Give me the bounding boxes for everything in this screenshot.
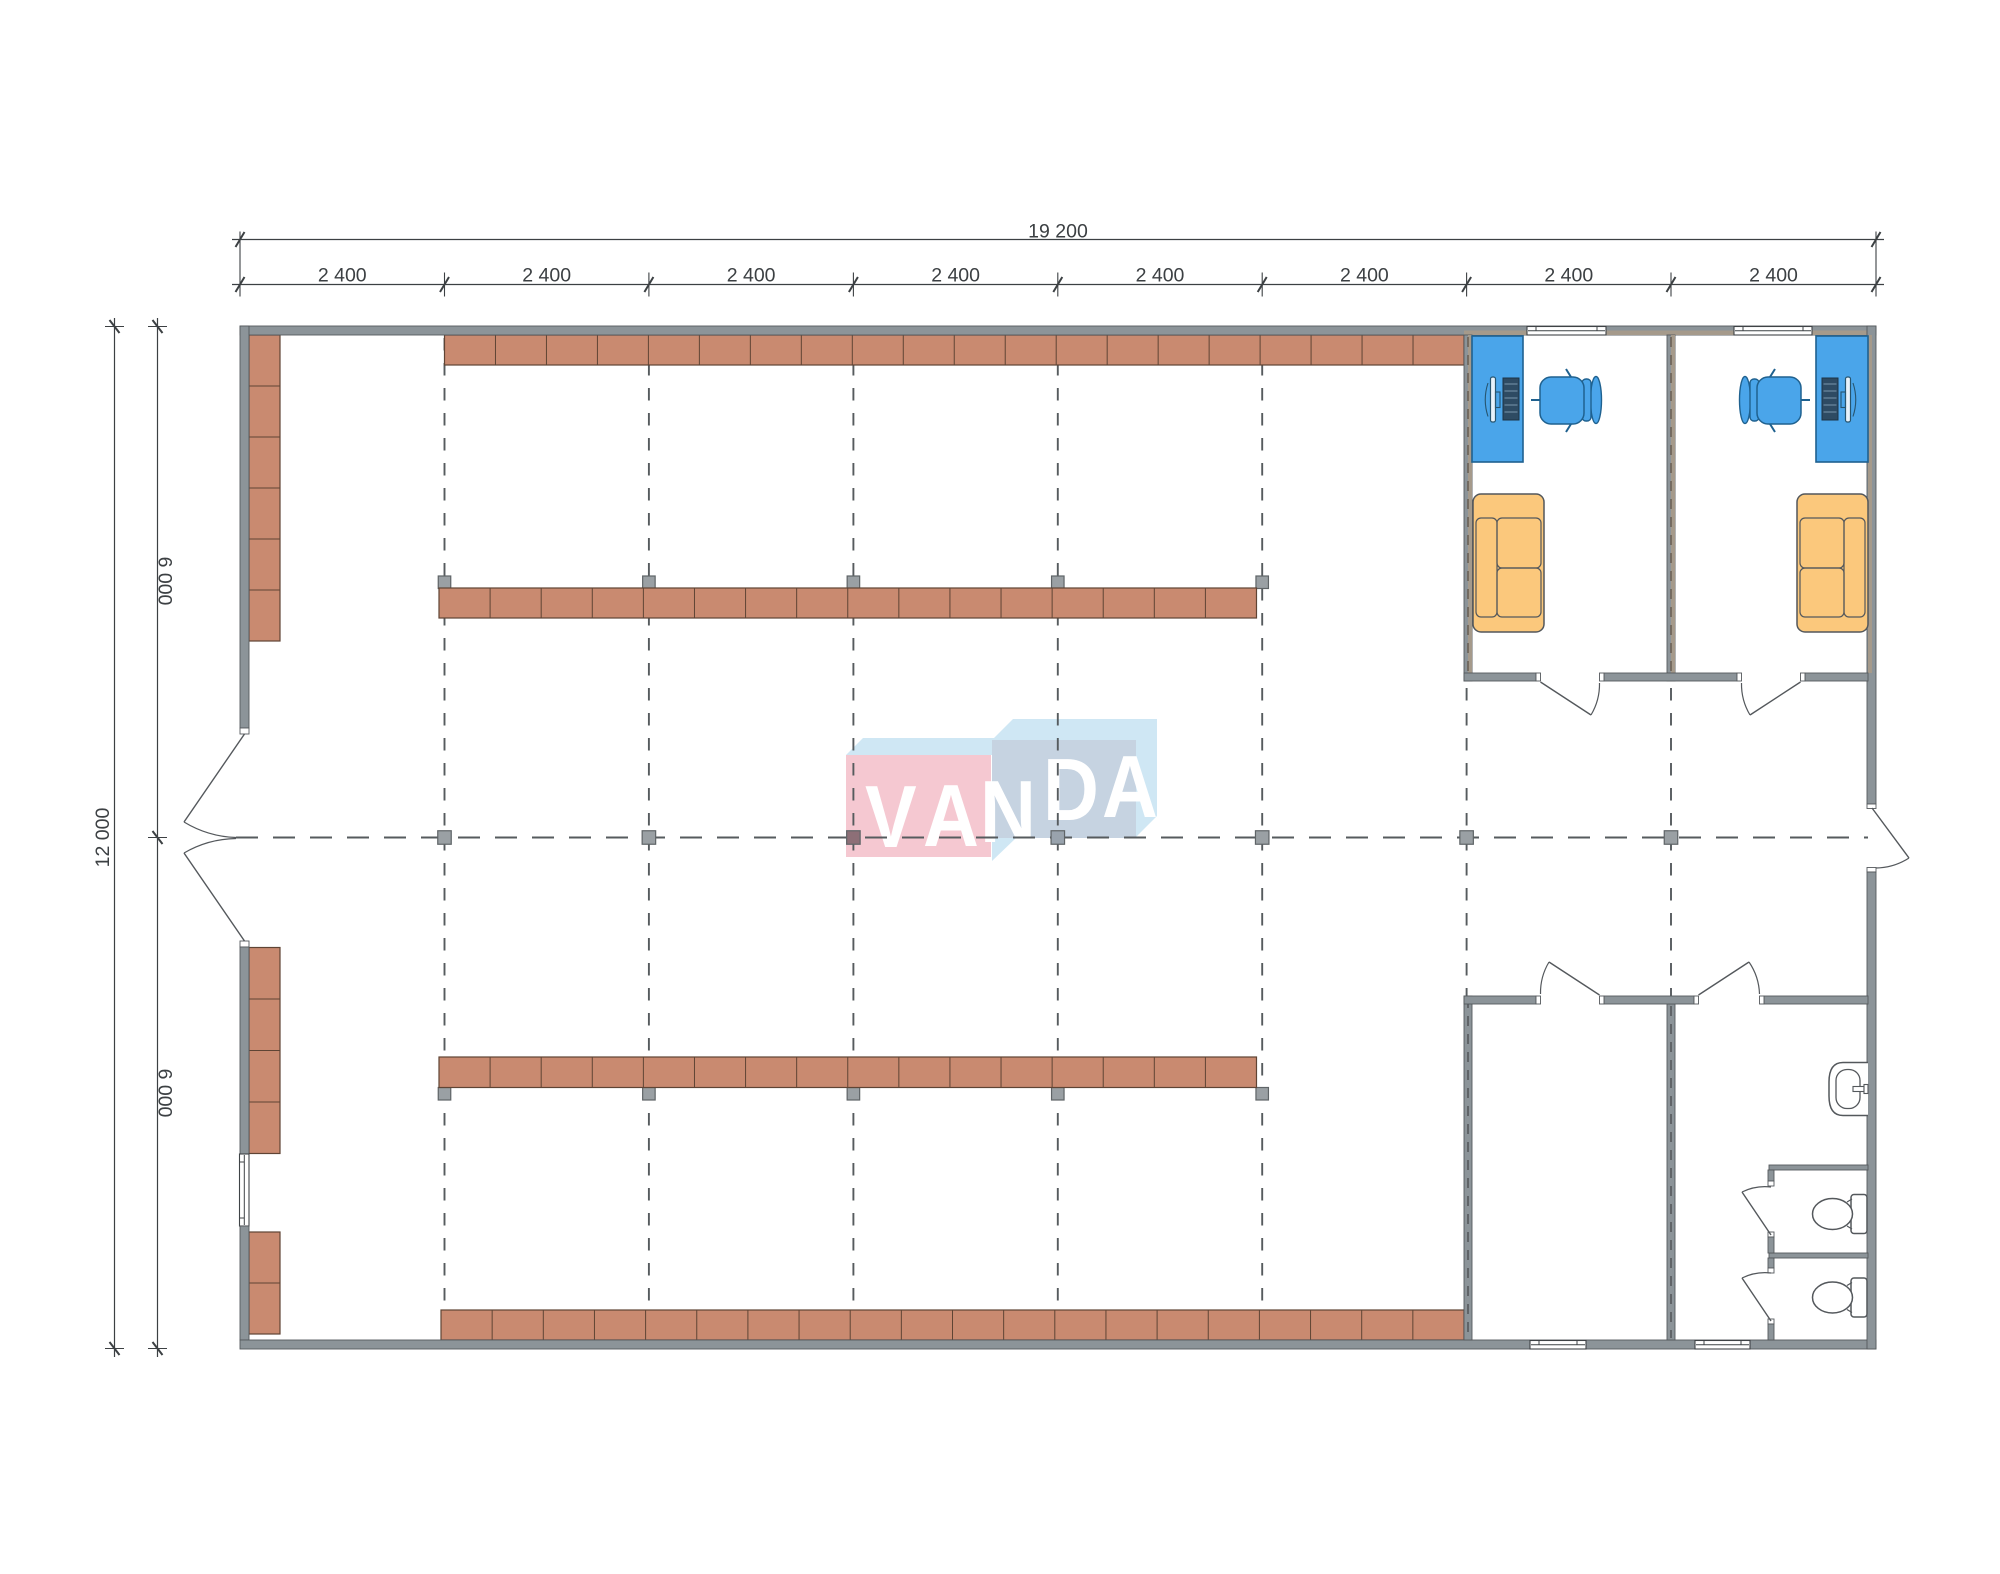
svg-text:D: D <box>1043 740 1099 839</box>
svg-text:2 400: 2 400 <box>1749 265 1798 287</box>
svg-text:2 400: 2 400 <box>1340 265 1389 287</box>
svg-text:2 400: 2 400 <box>931 265 980 287</box>
svg-text:19 200: 19 200 <box>1028 221 1088 243</box>
svg-text:2 400: 2 400 <box>318 265 367 287</box>
svg-text:A: A <box>923 766 979 865</box>
svg-text:V: V <box>865 767 917 866</box>
svg-text:2 400: 2 400 <box>1136 265 1185 287</box>
svg-text:2 400: 2 400 <box>1544 265 1593 287</box>
svg-text:2 400: 2 400 <box>727 265 776 287</box>
svg-text:N: N <box>980 762 1036 861</box>
svg-text:6 000: 6 000 <box>154 557 176 606</box>
svg-text:12 000: 12 000 <box>92 808 114 868</box>
svg-text:A: A <box>1102 737 1158 836</box>
svg-text:2 400: 2 400 <box>522 265 571 287</box>
svg-text:6 000: 6 000 <box>154 1069 176 1118</box>
